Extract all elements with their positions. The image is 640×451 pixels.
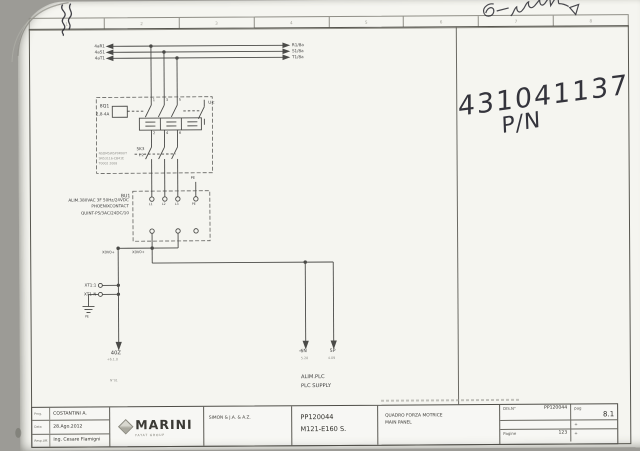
psu-terminal-label: L2 bbox=[162, 203, 166, 206]
undervoltage-label: U< bbox=[208, 101, 214, 105]
revision-mark: + bbox=[574, 430, 578, 440]
psu-terminal-label: L3 bbox=[175, 203, 179, 206]
terminal-number: 3 bbox=[166, 99, 168, 103]
drawing-title-en: MAIN PANEL bbox=[385, 419, 499, 427]
arrow-icons bbox=[116, 341, 336, 349]
psu-desc-line: QUINT-PS/3AC/24DC/10 bbox=[36, 211, 129, 216]
bus-label-left-r1: 4aR1 bbox=[81, 44, 105, 48]
bus-label-left-s1: 4aS1 bbox=[81, 50, 105, 54]
bus-label-left-t1: 4aT1 bbox=[81, 56, 105, 60]
pages-count: 123 bbox=[558, 431, 567, 441]
net-label: X0V0+ bbox=[102, 251, 115, 255]
aux-contact-tag: 5K3 bbox=[137, 147, 145, 151]
dest-tag: -6N bbox=[299, 350, 307, 355]
page-number: 8.1 bbox=[603, 410, 614, 418]
model-number: M121-E160 S. bbox=[300, 423, 377, 435]
bus-label-right-t1: T1/8a bbox=[292, 55, 304, 59]
order-cell: PP120044 M121-E160 S. bbox=[291, 406, 377, 446]
net-label: X0V0+ bbox=[132, 251, 145, 255]
dest-tag: 40Z bbox=[111, 351, 121, 356]
drawing-date: 28.Ago.2012 bbox=[50, 425, 82, 430]
dest-ref: 5.28 bbox=[301, 357, 308, 360]
paper-sheet: 1 2 3 4 5 6 7 8 bbox=[18, 0, 640, 451]
psu-desc-line: ALIM.380VAC 3F 50Hz/24VDC bbox=[36, 198, 129, 203]
plc-supply-caption: ALIM.PLC bbox=[301, 375, 325, 380]
psu-desc-line: PHOENIXCONTACT bbox=[36, 204, 129, 209]
order-number: PP120044 bbox=[300, 411, 377, 423]
terminal-number: 2 bbox=[153, 132, 155, 136]
page-label: pag bbox=[574, 405, 581, 418]
brand-name: MARINI bbox=[135, 416, 193, 431]
bus-label-right-s1: S1/8a bbox=[292, 49, 304, 53]
dest-ref: +6.1.0 bbox=[107, 358, 118, 361]
pen-scribble-topleft bbox=[62, 4, 72, 36]
aux-contact bbox=[134, 130, 177, 197]
bus-label-right-r1: R1/8a bbox=[292, 43, 304, 47]
marini-logo-icon bbox=[118, 419, 134, 435]
titleblock-info: Prog.COSTANTINI A. Data28.Ago.2012 Resp.… bbox=[32, 407, 109, 446]
terminal-number: 5 bbox=[179, 99, 181, 103]
xt-terminal-label: XT1-N bbox=[70, 292, 96, 296]
title-block: Prog.COSTANTINI A. Data28.Ago.2012 Resp.… bbox=[31, 403, 618, 448]
breaker-partnumber: T0002 2008 bbox=[99, 162, 118, 165]
terminal-number: 4 bbox=[166, 132, 168, 136]
plc-supply-caption: PLC SUPPLY bbox=[301, 384, 331, 389]
ground-label: PE bbox=[85, 315, 89, 318]
breaker-tag: 8Q1 bbox=[83, 105, 109, 110]
xt-terminal-label: XT1:1 bbox=[70, 283, 96, 287]
terminal-number: 1 bbox=[153, 99, 155, 103]
breaker-partnumber: NSDM5W5P0R0UT bbox=[99, 152, 127, 155]
revision-mark: + bbox=[574, 421, 578, 427]
brand-group: FAYAT GROUP bbox=[135, 432, 193, 436]
drawing-title-cell: QUADRO FORZA MOTRICE MAIN PANEL bbox=[377, 405, 499, 445]
designer-name: COSTANTINI A. bbox=[50, 411, 87, 416]
pen-scribble-topright bbox=[483, 0, 578, 16]
manager-name: Ing. Cesare Flamigni bbox=[50, 438, 100, 443]
dis-label: DIS.N° bbox=[503, 406, 516, 419]
dis-value: PP120044 bbox=[544, 406, 567, 419]
dest-ref: 4.09 bbox=[328, 356, 335, 359]
terminal-number: 6 bbox=[179, 132, 181, 136]
company-cell: SIMON & J.A. & A.Z. bbox=[203, 406, 292, 446]
ground-icon bbox=[82, 306, 94, 312]
scanned-schematic-page: 1 2 3 4 5 6 7 8 bbox=[0, 0, 640, 451]
output-wires bbox=[117, 232, 334, 342]
psu-terminal-label: PE bbox=[192, 203, 196, 206]
info-label: Prog. bbox=[32, 408, 50, 420]
corner-curl bbox=[12, 3, 72, 438]
power-bus-lines bbox=[107, 43, 289, 105]
psu-symbol bbox=[133, 182, 210, 241]
psu-terminal-label: L1 bbox=[149, 203, 153, 206]
aux-contact-ref: 1.2 bbox=[139, 154, 144, 157]
drawing-number-cell: DIS.N°PP120044 pag8.1 + Pagine123 + bbox=[499, 404, 617, 444]
pages-label: Pagine bbox=[503, 431, 516, 441]
info-label: Resp.Uff. bbox=[32, 434, 50, 446]
pe-label: PE bbox=[191, 177, 195, 181]
dest-tag: 5P bbox=[330, 350, 336, 355]
breaker-range: 2,8-4A bbox=[77, 112, 109, 116]
info-label: Data bbox=[32, 421, 50, 433]
brand-cell: MARINI FAYAT GROUP bbox=[109, 407, 203, 447]
wire-number: N°01 bbox=[110, 379, 118, 382]
breaker-partnumber: SN53116-CB41E bbox=[99, 157, 124, 160]
